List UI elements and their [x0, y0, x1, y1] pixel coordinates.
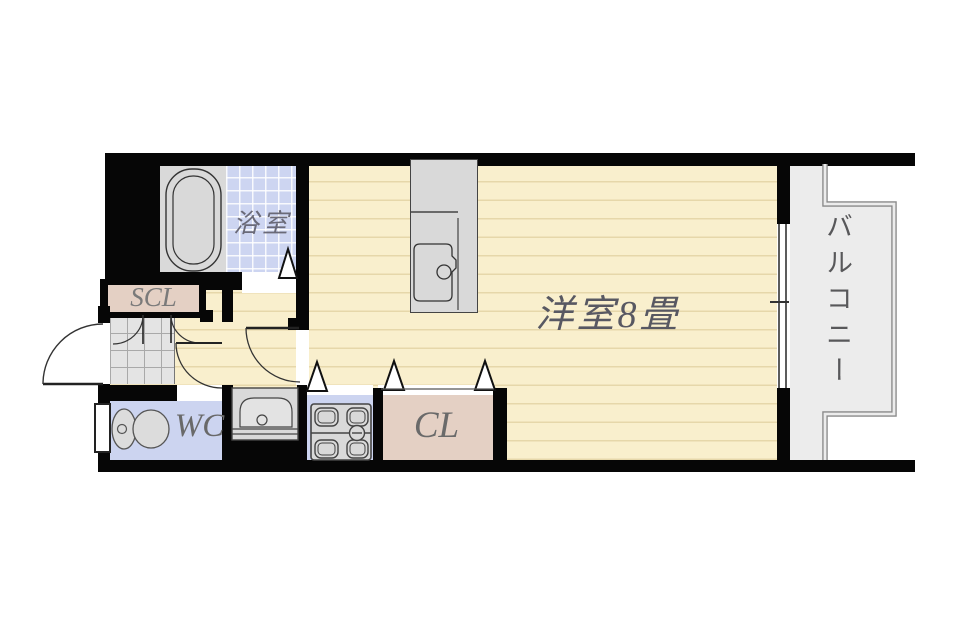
balcony-label: バルコニー [818, 212, 857, 422]
stove-area [305, 392, 377, 462]
closet-right-wall [493, 388, 507, 462]
room-door-opening [296, 328, 309, 385]
entrance-door-icon [43, 324, 103, 384]
window-stub-top [777, 164, 790, 224]
scl-corner-stub [200, 310, 213, 322]
bathtub-unit [158, 164, 227, 277]
door-hinge-stub [288, 318, 309, 330]
toilet-room-label: WC [152, 408, 247, 445]
outer-wall-bottom [105, 460, 915, 472]
pipe-space-block [105, 153, 160, 285]
closet-front-band [378, 385, 493, 395]
wc-top-wall-left [103, 385, 177, 401]
window-opening [777, 224, 788, 388]
wc-window [94, 403, 111, 453]
corridor-wall [222, 280, 233, 322]
bathroom-right-wall [296, 164, 309, 328]
wc-door-opening [177, 385, 222, 401]
outer-wall-top [105, 153, 915, 166]
kitchen-counter [410, 159, 478, 313]
window-stub-bottom [777, 388, 790, 460]
closet-label: CL [380, 404, 493, 447]
washbasin-right-wall [297, 385, 307, 460]
stove-front-band [307, 385, 373, 395]
bathroom-label: 浴室 [226, 203, 298, 240]
entrance-genkan [110, 316, 175, 384]
floor-plan: 浴室 SCL WC CL 洋室8畳 バルコニー [0, 0, 960, 622]
bathroom-door-opening [242, 272, 298, 293]
main-room-label: 洋室8畳 [480, 283, 736, 338]
shoe-closet-label: SCL [108, 282, 199, 313]
